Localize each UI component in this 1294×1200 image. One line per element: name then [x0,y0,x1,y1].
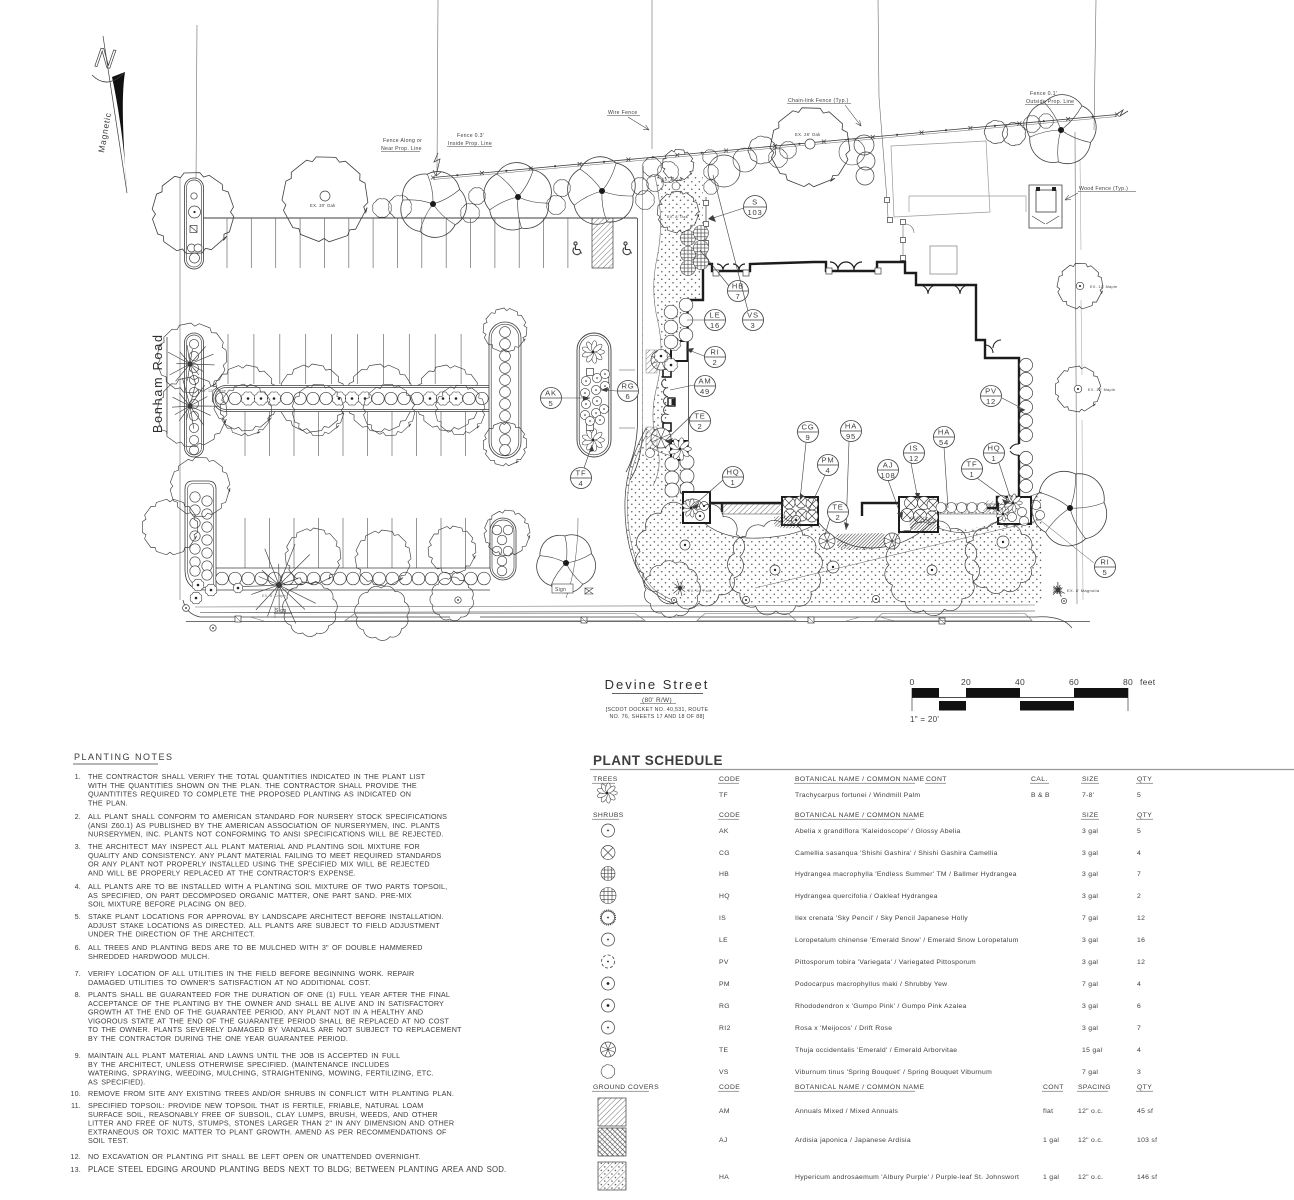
svg-text:RI: RI [1100,557,1109,566]
svg-text:PV: PV [719,959,729,966]
svg-text:12" o.c.: 12" o.c. [1078,1137,1103,1144]
svg-text:PM: PM [822,455,835,464]
svg-text:NURSERYMEN, INC. PLANTS NOT: NURSERYMEN, INC. PLANTS NOT CONFORMING T… [88,830,444,839]
svg-text:5: 5 [548,399,553,408]
svg-text:Sign: Sign [555,587,566,593]
svg-text:1 gal: 1 gal [1043,1174,1059,1181]
svg-text:Fence 0.3': Fence 0.3' [457,133,484,139]
svg-text:EX. 8' Oak: EX. 8' Oak [667,215,688,219]
svg-text:AJ: AJ [719,1137,728,1144]
svg-text:Fence 0.1': Fence 0.1' [1030,91,1057,97]
svg-text:LE: LE [710,310,721,319]
svg-text:LE: LE [719,937,728,944]
svg-text:20: 20 [961,677,971,687]
svg-text:7: 7 [1137,871,1141,878]
svg-text:QUALITY AND CONSISTENCY. ANY: QUALITY AND CONSISTENCY. ANY PLANT MATER… [88,851,441,860]
svg-text:12" o.c.: 12" o.c. [1078,1174,1103,1181]
svg-text:BOTANICAL NAME / COMMON NAME: BOTANICAL NAME / COMMON NAME [795,812,924,819]
svg-text:4: 4 [825,466,830,475]
svg-text:95: 95 [846,432,856,441]
svg-text:2.: 2. [75,812,81,821]
svg-text:WITH THE QUANTITIES SHOWN ON T: WITH THE QUANTITIES SHOWN ON THE PLAN. T… [88,781,417,790]
svg-text:IS: IS [719,915,726,922]
svg-text:6: 6 [1137,1003,1141,1010]
svg-text:(ANSI Z60.1) AS PUBLISHED BY T: (ANSI Z60.1) AS PUBLISHED BY THE AMERICA… [88,821,440,830]
svg-text:ALL PLANTS ARE TO BE INSTALLED: ALL PLANTS ARE TO BE INSTALLED WITH A PL… [88,882,447,891]
svg-text:3: 3 [750,321,755,330]
svg-text:BOTANICAL NAME / COMMON NAME: BOTANICAL NAME / COMMON NAME [795,776,924,783]
svg-text:54: 54 [939,438,949,447]
svg-text:9.: 9. [75,1051,81,1060]
svg-text:BY THE ARCHITECT, UNLESS OTHER: BY THE ARCHITECT, UNLESS OTHERWISE SPECI… [88,1060,389,1069]
svg-text:103 sf: 103 sf [1137,1137,1157,1144]
svg-text:EX. 12' Maple: EX. 12' Maple [1088,388,1115,392]
svg-text:3 gal: 3 gal [1082,1003,1098,1010]
svg-text:QUANTITITES REQUIRED TO COMPLE: QUANTITITES REQUIRED TO COMPLETE THE PRO… [88,790,411,799]
svg-text:STAKE PLANT LOCATIONS FOR APPR: STAKE PLANT LOCATIONS FOR APPROVAL BY LA… [88,912,443,921]
svg-text:Bonham Road: Bonham Road [151,333,165,433]
svg-text:THE PLAN.: THE PLAN. [88,798,128,807]
svg-text:3 gal: 3 gal [1082,959,1098,966]
svg-text:VERIFY LOCATION OF ALL UTILITI: VERIFY LOCATION OF ALL UTILITIES IN THE … [88,969,414,978]
svg-text:Trachycarpus fortunei / Windmi: Trachycarpus fortunei / Windmill Palm [795,792,920,799]
svg-text:5: 5 [1137,828,1141,835]
svg-text:3 gal: 3 gal [1082,828,1098,835]
svg-text:4: 4 [578,479,583,488]
svg-text:EX. 8' Oak: EX. 8' Oak [662,178,683,182]
svg-text:ACCEPTANCE OF THE PLANTING BY: ACCEPTANCE OF THE PLANTING BY THE OWNER … [88,999,444,1008]
svg-text:AK: AK [719,828,729,835]
svg-text:PV: PV [985,386,997,395]
svg-text:80: 80 [1123,677,1133,687]
svg-text:B & B: B & B [1031,792,1050,799]
svg-text:PM: PM [719,981,730,988]
svg-text:flat: flat [1043,1108,1053,1115]
svg-text:Abelia x grandiflora 'Kaleidos: Abelia x grandiflora 'Kaleidoscope' / Gl… [795,828,961,835]
svg-text:CG: CG [719,850,730,857]
svg-text:16: 16 [1137,937,1145,944]
svg-text:SURFACE SOIL, REASONABLY FREE: SURFACE SOIL, REASONABLY FREE OF SUBSOIL… [88,1110,438,1119]
svg-text:12: 12 [1137,959,1145,966]
svg-text:Hypericum androsaemum 'Albury: Hypericum androsaemum 'Albury Purple' / … [795,1174,1019,1181]
svg-text:12: 12 [986,397,996,406]
svg-text:1: 1 [730,478,735,487]
svg-text:HQ: HQ [988,443,1001,452]
svg-text:4: 4 [1137,1047,1141,1054]
svg-text:5: 5 [1102,568,1107,577]
svg-text:Near Prop. Line: Near Prop. Line [381,146,422,152]
svg-text:146 sf: 146 sf [1137,1174,1157,1181]
svg-text:AS SPECIFIED).: AS SPECIFIED). [88,1077,145,1086]
svg-text:EX. 26' Oak: EX. 26' Oak [795,132,821,137]
svg-text:Camellia sasanqua 'Shishi Gash: Camellia sasanqua 'Shishi Gashira' / Shi… [795,850,998,857]
svg-text:AJ: AJ [883,460,893,469]
svg-text:Rosa x 'Meijocos' / Drift Rose: Rosa x 'Meijocos' / Drift Rose [795,1025,892,1032]
svg-text:(80' R/W): (80' R/W) [642,697,672,704]
svg-text:103: 103 [747,208,762,217]
svg-text:TE: TE [719,1047,729,1054]
svg-text:2: 2 [697,422,702,431]
svg-text:NO EXCAVATION OR PLANTING PIT: NO EXCAVATION OR PLANTING PIT SHALL BE L… [88,1152,421,1161]
svg-text:7.: 7. [75,969,81,978]
svg-text:Rhododendron x 'Gumpo Pink' /: Rhododendron x 'Gumpo Pink' / Gumpo Pink… [795,1003,967,1010]
svg-text:VS: VS [747,310,759,319]
svg-text:CODE: CODE [719,776,740,783]
svg-text:3.: 3. [75,842,81,851]
svg-text:feet: feet [1140,677,1156,687]
svg-text:3 gal: 3 gal [1082,937,1098,944]
svg-text:2: 2 [1137,893,1141,900]
svg-text:SOIL MIXTURE BEFORE PLACING ON: SOIL MIXTURE BEFORE PLACING ON BED. [88,900,246,909]
svg-text:7 gal: 7 gal [1082,915,1098,922]
svg-text:BOTANICAL NAME / COMMON NAME: BOTANICAL NAME / COMMON NAME [795,1084,924,1091]
svg-text:EX. 12' Maple: EX. 12' Maple [1090,285,1117,289]
svg-text:60: 60 [1069,677,1079,687]
svg-text:PLACE STEEL EDGING AROUND PLAN: PLACE STEEL EDGING AROUND PLANTING BEDS … [88,1165,506,1174]
svg-text:TF: TF [576,468,587,477]
svg-text:SPACING: SPACING [1078,1084,1111,1091]
svg-text:GROUND COVERS: GROUND COVERS [593,1084,659,1091]
svg-text:HA: HA [938,427,950,436]
svg-text:7 gal: 7 gal [1082,1069,1098,1076]
svg-text:12: 12 [1137,915,1145,922]
svg-text:IS: IS [910,443,919,452]
svg-text:Devine Street: Devine Street [605,677,710,692]
svg-text:[SCDOT DOCKET NO. 40,531, ROUT: [SCDOT DOCKET NO. 40,531, ROUTE [606,707,709,713]
svg-text:EX. 14' Palm: EX. 14' Palm [688,589,712,593]
svg-text:Thuja occidentalis 'Emerald' /: Thuja occidentalis 'Emerald' / Emerald A… [795,1047,957,1054]
svg-text:CODE: CODE [719,1084,740,1091]
svg-text:AM: AM [699,376,712,385]
svg-text:QTY: QTY [1137,812,1152,819]
svg-text:HQ: HQ [719,893,730,900]
svg-text:EXTRANEOUS OR TOXIC MATTER TO: EXTRANEOUS OR TOXIC MATTER TO PLANT GROW… [88,1127,447,1136]
svg-text:PLANTS SHALL BE GUARANTEED FOR: PLANTS SHALL BE GUARANTEED FOR THE DURAT… [88,990,450,999]
svg-text:THE CONTRACTOR SHALL VERIFY TH: THE CONTRACTOR SHALL VERIFY THE TOTAL QU… [88,772,426,781]
svg-text:4: 4 [1137,981,1141,988]
svg-text:RI: RI [710,347,719,356]
svg-text:EX. 8' Crape: EX. 8' Crape [262,594,286,598]
svg-text:ALL PLANT SHALL CONFORM TO AME: ALL PLANT SHALL CONFORM TO AMERICAN STAN… [88,812,447,821]
svg-text:5: 5 [1137,792,1141,799]
svg-text:VIGOROUS STATE AT THE END OF T: VIGOROUS STATE AT THE END OF THE GUARANT… [88,1016,450,1025]
svg-text:6.: 6. [75,943,81,952]
svg-text:EX. 12' Crape: EX. 12' Crape [200,389,226,393]
svg-text:108: 108 [880,471,895,480]
svg-text:12.: 12. [70,1152,81,1161]
svg-text:12" o.c.: 12" o.c. [1078,1108,1103,1115]
svg-text:3 gal: 3 gal [1082,850,1098,857]
svg-text:AND WILL BE PROPERLY REPLACED: AND WILL BE PROPERLY REPLACED AT THE CON… [88,868,356,877]
svg-text:9: 9 [805,433,810,442]
svg-text:Viburnum tinus 'Spring Bouquet: Viburnum tinus 'Spring Bouquet' / Spring… [795,1069,992,1076]
svg-text:PLANT SCHEDULE: PLANT SCHEDULE [593,753,723,768]
svg-text:RG: RG [622,381,635,390]
svg-text:EX. 8' Magnolia: EX. 8' Magnolia [1067,588,1100,593]
svg-text:10.: 10. [70,1089,81,1098]
svg-text:3: 3 [1137,1069,1141,1076]
svg-text:13.: 13. [70,1165,81,1174]
svg-text:Wire Fence: Wire Fence [608,110,638,116]
svg-text:1" = 20': 1" = 20' [910,715,939,724]
svg-text:16: 16 [710,321,720,330]
svg-text:HA: HA [719,1174,729,1181]
svg-text:WATERING, SPRAYING, WEEDING, M: WATERING, SPRAYING, WEEDING, MULCHING, S… [88,1069,434,1078]
svg-text:DAMAGED UTILITIES TO OWNER'S S: DAMAGED UTILITIES TO OWNER'S SATISFACTIO… [88,978,370,987]
svg-text:TE: TE [832,502,843,511]
svg-text:SHRUBS: SHRUBS [593,812,624,819]
svg-text:THE ARCHITECT MAY INSPECT ALL: THE ARCHITECT MAY INSPECT ALL PLANT MATE… [88,842,420,851]
svg-text:Hydrangea macrophylla 'Endless: Hydrangea macrophylla 'Endless Summer' T… [795,871,1017,878]
svg-text:4.: 4. [75,882,81,891]
svg-text:AK: AK [545,388,557,397]
svg-text:11.: 11. [71,1101,81,1110]
svg-text:8.: 8. [75,990,81,999]
svg-text:TF: TF [719,792,728,799]
svg-text:QTY: QTY [1137,1084,1152,1091]
svg-text:2: 2 [835,513,840,522]
svg-text:1.: 1. [75,772,81,781]
svg-text:SHREDDED HARDWOOD MULCH.: SHREDDED HARDWOOD MULCH. [88,952,209,961]
svg-text:PLANTING NOTES: PLANTING NOTES [74,752,174,762]
svg-text:SIZE: SIZE [1082,776,1099,783]
svg-text:15 gal: 15 gal [1082,1047,1103,1054]
svg-text:QTY: QTY [1137,776,1152,783]
svg-text:S: S [752,197,758,206]
svg-text:Ilex crenata 'Sky Pencil' / Sk: Ilex crenata 'Sky Pencil' / Sky Pencil J… [795,915,968,922]
svg-text:4: 4 [1137,850,1141,857]
svg-text:LITTER AND FREE OF NUTS, STUMP: LITTER AND FREE OF NUTS, STUMPS, STONES … [88,1119,454,1128]
svg-text:MAINTAIN ALL PLANT MATERIAL AN: MAINTAIN ALL PLANT MATERIAL AND LAWNS UN… [88,1051,400,1060]
svg-text:CONT: CONT [926,776,947,783]
svg-text:OR ANY PLANT NOT PROPERLY INST: OR ANY PLANT NOT PROPERLY INSTALLED USIN… [88,860,430,869]
svg-text:Annuals Mixed / Mixed Annuals: Annuals Mixed / Mixed Annuals [795,1108,898,1115]
svg-text:1: 1 [991,454,996,463]
svg-text:1: 1 [969,470,974,479]
svg-text:3 gal: 3 gal [1082,871,1098,878]
svg-text:Fence Along or: Fence Along or [383,138,422,144]
svg-text:TE: TE [694,411,705,420]
svg-text:Outside Prop. Line: Outside Prop. Line [1026,99,1074,105]
svg-text:NO. 76, SHEETS 17 AND 18 OF 88: NO. 76, SHEETS 17 AND 18 OF 88] [610,714,705,720]
svg-text:3 gal: 3 gal [1082,893,1098,900]
svg-text:TF: TF [967,459,978,468]
svg-text:Podocarpus macrophyllus maki /: Podocarpus macrophyllus maki / Shrubby Y… [795,981,947,988]
svg-text:HB: HB [719,871,729,878]
svg-text:7: 7 [1137,1025,1141,1032]
svg-text:Loropetalum chinense 'Emerald: Loropetalum chinense 'Emerald Snow' / Em… [795,937,1019,944]
svg-text:VS: VS [719,1069,729,1076]
svg-text:CODE: CODE [719,812,740,819]
svg-text:1 gal: 1 gal [1043,1137,1059,1144]
svg-text:HQ: HQ [727,467,740,476]
svg-text:Inside Prop. Line: Inside Prop. Line [448,141,492,147]
svg-text:CONT: CONT [1043,1084,1064,1091]
svg-text:5.: 5. [75,912,81,921]
svg-text:AM: AM [719,1108,730,1115]
svg-text:Wood Fence (Typ.): Wood Fence (Typ.) [1079,186,1128,192]
svg-text:7-8': 7-8' [1082,792,1094,799]
svg-text:40: 40 [1015,677,1025,687]
svg-text:SOIL TEST.: SOIL TEST. [88,1136,128,1145]
svg-text:EX. 30' Oak: EX. 30' Oak [310,203,336,208]
svg-text:Pittosporum tobira 'Variegata': Pittosporum tobira 'Variegata' / Variega… [795,959,976,966]
svg-text:Ardisia japonica / Japanese Ar: Ardisia japonica / Japanese Ardisia [795,1137,911,1144]
svg-text:ALL TREES AND PLANTING BEDS AR: ALL TREES AND PLANTING BEDS ARE TO BE MU… [88,943,423,952]
svg-text:TO THE OWNER. PLANTS SEVERELY: TO THE OWNER. PLANTS SEVERELY DAMAGED BY… [88,1025,462,1034]
svg-text:2: 2 [712,358,717,367]
svg-text:SPECIFIED TOPSOIL: PROVIDE N: SPECIFIED TOPSOIL: PROVIDE NEW TOPSOIL T… [88,1101,423,1110]
svg-text:CG: CG [802,422,815,431]
svg-text:REMOVE FROM SITE ANY EXISTING: REMOVE FROM SITE ANY EXISTING TREES AND/… [88,1089,454,1098]
svg-text:12: 12 [909,454,919,463]
svg-text:UNDER THE DIRECTION OF THE ARC: UNDER THE DIRECTION OF THE ARCHITECT. [88,930,255,939]
svg-text:RG: RG [719,1003,730,1010]
svg-text:SIZE: SIZE [1082,812,1099,819]
svg-text:7 gal: 7 gal [1082,981,1098,988]
svg-text:49: 49 [700,387,710,396]
svg-text:3 gal: 3 gal [1082,1025,1098,1032]
svg-text:6: 6 [625,392,630,401]
svg-text:Chain-link Fence (Typ.): Chain-link Fence (Typ.) [788,98,849,104]
svg-text:BY THE CONTRACTOR DURING THE O: BY THE CONTRACTOR DURING THE ONE YEAR GU… [88,1034,348,1043]
svg-text:7: 7 [735,292,740,301]
svg-text:HA: HA [845,421,857,430]
svg-text:RI2: RI2 [719,1025,731,1032]
svg-text:0: 0 [909,677,914,687]
svg-text:TREES: TREES [593,776,618,783]
svg-text:Hydrangea quercifolia / Oaklea: Hydrangea quercifolia / Oakleaf Hydrange… [795,893,938,900]
svg-text:CAL.: CAL. [1031,776,1048,783]
svg-text:GROWTH AT THE END OF THE GUARA: GROWTH AT THE END OF THE GUARANTEE PERIO… [88,1008,423,1017]
svg-text:45 sf: 45 sf [1137,1108,1153,1115]
svg-text:ADJUST STAKE LOCATIONS AS DIRE: ADJUST STAKE LOCATIONS AS DIRECTED. ALL … [88,921,440,930]
svg-text:AS SPECIFIED, ON PART DECOMPOS: AS SPECIFIED, ON PART DECOMPOSED ORGANIC… [88,891,412,900]
